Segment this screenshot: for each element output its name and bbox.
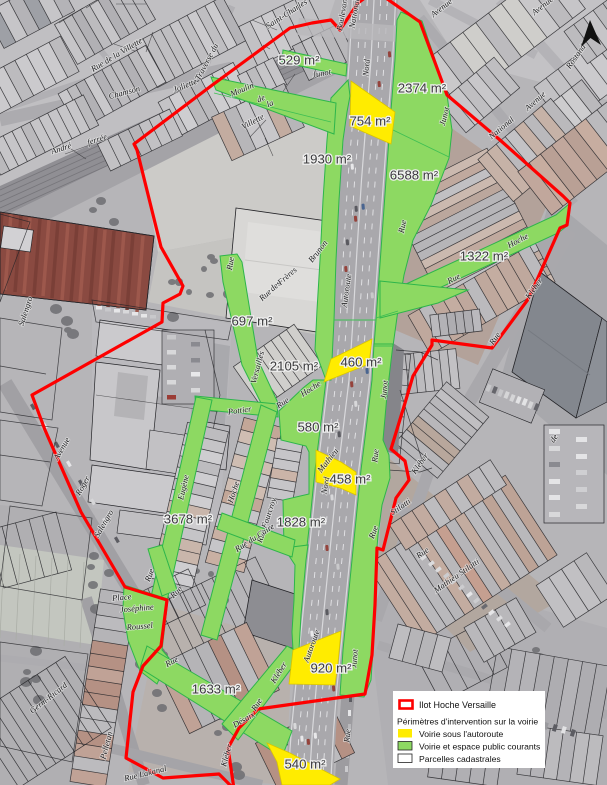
svg-text:2105 m²: 2105 m²	[270, 358, 319, 373]
svg-text:2374 m²: 2374 m²	[398, 80, 447, 95]
svg-text:Périmètres d'intervention sur: Périmètres d'intervention sur la voirie	[397, 717, 538, 727]
svg-text:Junot: Junot	[378, 379, 390, 399]
svg-text:1930 m²: 1930 m²	[303, 151, 352, 166]
svg-text:529 m²: 529 m²	[278, 52, 320, 67]
svg-text:6588 m²: 6588 m²	[390, 167, 439, 182]
svg-text:754 m²: 754 m²	[349, 113, 391, 128]
svg-text:Ilot Hoche Versaille: Ilot Hoche Versaille	[419, 700, 496, 710]
svg-text:Rue: Rue	[341, 728, 352, 743]
svg-text:Nord: Nord	[360, 58, 372, 78]
svg-text:458 m²: 458 m²	[329, 471, 371, 486]
svg-text:460 m²: 460 m²	[340, 354, 382, 369]
svg-text:1322 m²: 1322 m²	[460, 248, 509, 263]
svg-text:697 m²: 697 m²	[231, 313, 273, 328]
svg-text:Parcelles cadastrales: Parcelles cadastrales	[419, 754, 501, 764]
svg-text:1828 m²: 1828 m²	[277, 514, 326, 529]
svg-text:1633 m²: 1633 m²	[192, 681, 241, 696]
svg-text:Voirie sous l'autoroute: Voirie sous l'autoroute	[419, 729, 504, 739]
svg-text:Rue: Rue	[369, 448, 380, 463]
svg-text:Voirie et espace public couran: Voirie et espace public courants	[419, 742, 540, 752]
svg-text:920 m²: 920 m²	[310, 660, 352, 675]
svg-text:Place: Place	[111, 591, 132, 603]
svg-text:3678 m²: 3678 m²	[164, 511, 213, 526]
svg-text:580 m²: 580 m²	[297, 419, 339, 434]
svg-text:540 m²: 540 m²	[284, 756, 326, 771]
